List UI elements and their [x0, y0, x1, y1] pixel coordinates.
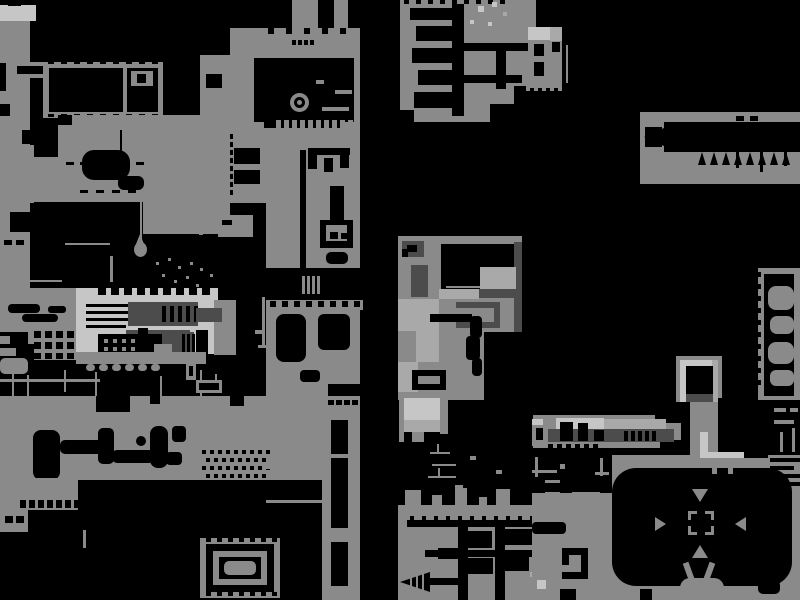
map-shape — [151, 364, 160, 371]
map-shape — [190, 262, 193, 265]
map-shape — [242, 450, 246, 454]
map-shape — [464, 0, 469, 4]
map-shape — [122, 347, 126, 351]
map-shape — [790, 408, 798, 412]
map-shape — [272, 538, 277, 542]
map-shape — [302, 276, 305, 294]
map-shape — [0, 348, 16, 356]
map-shape — [581, 555, 588, 573]
map-shape — [239, 538, 244, 542]
map-shape — [61, 61, 67, 64]
map-shape — [230, 396, 244, 406]
map-shape — [20, 500, 26, 508]
map-shape — [496, 489, 510, 506]
map-shape — [711, 511, 714, 520]
map-shape — [218, 215, 253, 237]
map-shape — [166, 452, 182, 465]
map-shape — [230, 174, 233, 179]
map-shape — [182, 334, 185, 352]
map-shape — [67, 342, 74, 349]
map-shape — [294, 301, 300, 307]
map-shape — [768, 342, 794, 364]
map-shape — [758, 296, 761, 301]
map-shape — [404, 420, 440, 432]
map-shape — [758, 308, 761, 313]
map-shape — [416, 574, 418, 590]
map-shape — [118, 176, 144, 190]
map-shape — [412, 384, 440, 390]
map-shape — [698, 152, 706, 165]
map-shape — [548, 444, 553, 448]
map-shape — [505, 556, 529, 571]
map-shape — [722, 152, 730, 165]
map-shape — [178, 306, 182, 322]
map-shape — [167, 215, 171, 219]
map-shape — [466, 531, 492, 548]
map-shape — [258, 345, 266, 348]
map-shape — [292, 40, 296, 45]
map-shape — [136, 436, 146, 446]
light-block-topleft — [0, 5, 36, 21]
map-shape — [86, 364, 95, 371]
map-shape — [110, 256, 113, 282]
map-shape — [230, 150, 233, 155]
map-shape — [131, 347, 135, 351]
map-shape — [584, 444, 589, 448]
map-shape — [455, 488, 467, 506]
map-shape — [776, 482, 800, 486]
map-shape — [230, 190, 233, 195]
map-shape — [8, 0, 21, 6]
map-shape — [192, 334, 195, 352]
map-shape — [536, 428, 543, 440]
map-shape — [276, 314, 306, 362]
map-shape — [226, 466, 230, 470]
map-shape — [262, 474, 266, 478]
map-shape — [58, 115, 72, 125]
flask-tube — [330, 186, 344, 222]
map-shape — [437, 444, 439, 454]
map-shape — [214, 458, 218, 462]
map-shape — [545, 480, 560, 483]
map-shape — [250, 450, 254, 454]
map-shape — [300, 150, 306, 268]
map-shape — [65, 500, 71, 508]
map-shape — [80, 190, 88, 193]
map-shape — [336, 400, 342, 405]
map-shape — [300, 370, 320, 382]
map-shape — [566, 45, 568, 83]
map-shape — [5, 516, 13, 523]
map-shape — [210, 450, 214, 454]
map-shape — [27, 375, 29, 396]
map-shape — [222, 474, 226, 478]
map-shape — [222, 220, 232, 225]
map-shape — [728, 462, 733, 474]
map-shape — [430, 314, 472, 322]
map-shape — [466, 336, 480, 360]
map-shape — [562, 555, 569, 565]
map-shape — [168, 258, 171, 261]
map-shape — [178, 266, 181, 269]
map-shape — [199, 383, 219, 390]
map-shape — [45, 331, 52, 338]
map-shape — [412, 48, 452, 63]
black-building — [718, 398, 768, 458]
map-shape — [138, 364, 147, 371]
map-shape — [163, 288, 171, 295]
map-shape — [774, 420, 794, 424]
map-shape — [242, 466, 246, 470]
map-shape — [125, 364, 134, 371]
map-shape — [307, 276, 310, 294]
map-shape — [124, 288, 132, 295]
map-shape — [202, 466, 206, 470]
map-shape — [316, 80, 324, 84]
map-shape — [352, 400, 358, 405]
map-shape — [470, 20, 474, 24]
droplet — [134, 242, 147, 257]
map-shape — [495, 527, 505, 600]
map-shape — [780, 432, 783, 452]
map-shape — [411, 265, 428, 297]
map-shape — [784, 152, 787, 166]
map-shape — [48, 61, 54, 64]
map-shape — [210, 466, 214, 470]
map-shape — [210, 274, 213, 277]
map-shape — [624, 431, 628, 441]
map-shape — [226, 450, 230, 454]
map-shape — [206, 74, 222, 88]
map-shape — [206, 538, 211, 542]
map-shape — [322, 28, 328, 34]
map-shape — [478, 6, 484, 12]
map-shape — [136, 162, 144, 165]
map-shape — [83, 530, 86, 548]
map-shape — [202, 288, 210, 295]
map-shape — [12, 372, 14, 396]
map-shape — [112, 190, 120, 193]
map-shape — [0, 104, 10, 116]
map-shape — [758, 272, 761, 277]
map-shape — [64, 370, 66, 392]
map-shape — [344, 400, 350, 405]
map-shape — [206, 592, 211, 596]
map-shape — [230, 142, 233, 147]
map-shape — [199, 231, 203, 235]
map-shape — [318, 314, 350, 350]
map-shape — [112, 450, 154, 463]
map-shape — [331, 420, 348, 454]
compass-cavern — [612, 468, 792, 586]
map-shape — [47, 500, 53, 508]
map-shape — [326, 252, 348, 264]
map-shape — [416, 0, 421, 4]
map-shape — [770, 152, 778, 165]
map-shape — [532, 419, 543, 425]
map-shape — [187, 334, 190, 352]
map-shape — [712, 462, 717, 474]
map-shape — [402, 249, 408, 257]
map-shape — [10, 212, 30, 232]
map-shape — [298, 40, 302, 45]
map-shape — [758, 332, 761, 337]
map-shape — [440, 376, 446, 390]
map-shape — [100, 61, 106, 64]
map-shape — [711, 526, 714, 535]
map-shape — [342, 301, 348, 307]
map-shape — [530, 88, 534, 91]
map-shape — [261, 538, 266, 542]
map-shape — [95, 372, 97, 396]
map-shape — [638, 431, 642, 441]
map-shape — [139, 61, 145, 64]
map-shape — [412, 376, 418, 384]
map-shape — [566, 444, 571, 448]
map-shape — [96, 396, 130, 412]
map-shape — [66, 162, 74, 165]
map-shape — [304, 40, 308, 45]
map-shape — [768, 286, 794, 310]
map-shape — [126, 61, 132, 64]
arrow-cave — [400, 572, 430, 592]
map-shape — [111, 288, 119, 295]
map-shape — [38, 500, 44, 508]
map-shape — [86, 325, 126, 328]
map-shape — [49, 68, 123, 112]
map-shape — [228, 592, 233, 596]
compass-arrow-left — [655, 517, 666, 531]
map-shape — [575, 444, 580, 448]
map-shape — [594, 430, 604, 441]
map-shape — [258, 450, 262, 454]
map-shape — [340, 28, 346, 34]
map-shape — [99, 364, 108, 371]
map-shape — [400, 110, 414, 122]
map-shape — [96, 190, 104, 193]
map-shape — [255, 330, 265, 334]
map-shape — [262, 297, 265, 347]
map-shape — [285, 433, 289, 448]
map-shape — [48, 114, 54, 117]
map-shape — [158, 228, 162, 232]
map-shape — [652, 431, 656, 441]
map-shape — [470, 316, 482, 338]
map-shape — [162, 274, 165, 277]
map-shape — [120, 130, 122, 156]
map-shape — [230, 474, 234, 478]
map-shape — [310, 40, 314, 45]
map-shape — [770, 466, 794, 470]
map-shape — [560, 422, 573, 441]
map-shape — [537, 580, 546, 589]
map-shape — [640, 589, 652, 600]
map-shape — [292, 0, 318, 28]
map-shape — [45, 342, 52, 349]
map-shape — [150, 288, 158, 295]
small-light-structure — [528, 27, 550, 40]
map-shape — [428, 0, 433, 4]
map-shape — [258, 466, 262, 470]
map-shape — [156, 262, 159, 265]
map-shape — [228, 538, 233, 542]
map-shape — [308, 155, 317, 169]
map-shape — [34, 353, 41, 359]
canyon — [33, 430, 60, 480]
map-shape — [34, 331, 41, 338]
map-shape — [311, 433, 315, 448]
compass-arrow-right — [735, 517, 746, 531]
map-shape — [317, 276, 320, 294]
pole-wire — [0, 280, 62, 282]
map-shape — [534, 62, 544, 76]
map-shape — [56, 500, 62, 508]
compass-arrow-top — [692, 489, 708, 502]
map-shape — [16, 240, 24, 245]
map-shape — [645, 431, 649, 441]
map-shape — [16, 516, 24, 523]
map-shape — [113, 61, 119, 64]
map-shape — [113, 347, 117, 351]
map-shape — [505, 529, 533, 545]
map-shape — [56, 353, 63, 359]
map-shape — [45, 353, 52, 359]
map-shape — [282, 426, 318, 433]
map-shape — [212, 226, 216, 230]
map-shape — [98, 288, 106, 295]
map-shape — [172, 426, 186, 442]
map-shape — [410, 8, 452, 20]
map-shape — [710, 152, 718, 165]
map-shape — [22, 130, 30, 144]
map-shape — [34, 342, 41, 349]
map-shape — [246, 474, 250, 478]
map-shape — [214, 474, 218, 478]
map-shape — [550, 27, 562, 41]
map-shape — [266, 466, 322, 469]
map-shape — [286, 28, 292, 34]
map-shape — [250, 466, 254, 470]
compass-arrow-bottom — [692, 545, 708, 558]
map-shape — [503, 12, 507, 16]
map-shape — [254, 474, 258, 478]
map-shape — [170, 306, 174, 322]
map-shape — [8, 304, 40, 313]
map-shape — [354, 301, 360, 307]
map-shape — [428, 476, 456, 478]
eye-ring-dot — [297, 100, 302, 105]
map-shape — [238, 474, 242, 478]
map-shape — [206, 458, 210, 462]
map-shape — [535, 457, 538, 477]
map-shape — [196, 308, 222, 322]
map-shape — [546, 88, 550, 91]
map-shape — [479, 497, 487, 506]
map-shape — [418, 70, 452, 85]
map-shape — [206, 474, 210, 478]
map-shape — [532, 470, 557, 473]
map-shape — [113, 339, 117, 343]
map-shape — [770, 316, 794, 334]
map-shape — [160, 376, 162, 396]
map-shape — [80, 162, 88, 165]
map-shape — [217, 538, 222, 542]
map-shape — [174, 280, 177, 283]
map-shape — [331, 458, 348, 528]
map-shape — [428, 578, 462, 585]
map-shape — [595, 472, 609, 475]
map-shape — [234, 450, 238, 454]
map-shape — [770, 458, 800, 462]
map-shape — [266, 450, 270, 454]
map-shape — [137, 74, 146, 83]
map-shape — [686, 394, 713, 402]
map-shape — [234, 148, 260, 164]
map-shape — [492, 2, 497, 7]
map-shape — [246, 458, 250, 462]
map-shape — [4, 240, 12, 245]
map-shape — [0, 254, 13, 269]
map-shape — [67, 331, 74, 338]
map-shape — [440, 0, 445, 4]
map-shape — [430, 452, 450, 454]
map-shape — [218, 466, 222, 470]
map-shape — [407, 245, 417, 252]
light-tower — [404, 398, 440, 420]
map-shape — [335, 90, 352, 94]
map-shape — [476, 0, 481, 4]
map-shape — [464, 75, 522, 83]
map-shape — [250, 538, 255, 542]
map-shape — [261, 592, 266, 596]
map-shape — [186, 306, 190, 322]
map-shape — [181, 222, 185, 226]
map-shape — [334, 0, 348, 28]
map-shape — [439, 289, 479, 299]
map-shape — [254, 458, 258, 462]
map-shape — [438, 468, 440, 478]
map-shape — [0, 336, 10, 344]
map-shape — [74, 500, 80, 508]
map-shape — [758, 580, 780, 594]
map-shape — [128, 190, 136, 193]
map-shape — [472, 358, 482, 376]
map-shape — [143, 200, 230, 234]
map-shape — [137, 288, 145, 295]
map-shape — [688, 526, 691, 535]
map-shape — [538, 88, 542, 91]
map-shape — [230, 134, 233, 139]
map-shape — [65, 243, 110, 245]
map-shape — [404, 0, 409, 4]
map-shape — [131, 339, 135, 343]
map-shape — [268, 28, 274, 34]
map-shape — [330, 232, 338, 239]
map-shape — [222, 458, 226, 462]
map-shape — [86, 318, 134, 321]
map-shape — [604, 419, 666, 429]
map-shape — [330, 301, 336, 307]
map-shape — [152, 61, 158, 64]
map-shape — [234, 466, 238, 470]
map-shape — [664, 122, 800, 152]
map-shape — [0, 21, 30, 63]
map-shape — [534, 44, 544, 56]
map-shape — [16, 336, 26, 360]
map-shape — [196, 284, 199, 287]
map-shape — [200, 268, 203, 271]
map-shape — [306, 301, 312, 307]
